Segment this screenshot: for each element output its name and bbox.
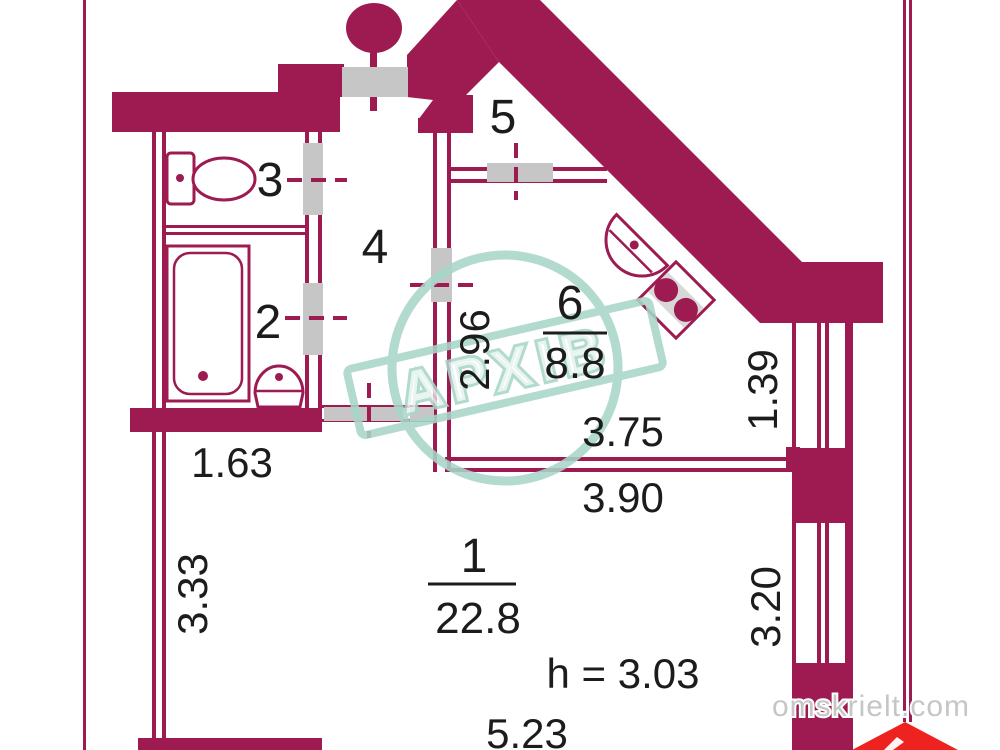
boundary-line-left: [83, 0, 86, 750]
bay-win2-inner-line: [792, 523, 796, 663]
dim-3-20: 3.20: [742, 566, 789, 648]
room4-number: 4: [362, 221, 389, 274]
dim-1-63: 1.63: [191, 439, 273, 486]
left-wall-line-2: [162, 132, 166, 743]
room2-number: 2: [255, 296, 282, 349]
bay-win1-outer-line: [845, 323, 853, 448]
shaft-wall-line-2: [447, 133, 451, 472]
roof-tip-b: [418, 118, 473, 133]
vent-window-opening: [342, 67, 408, 97]
room1-number: 1: [461, 530, 488, 583]
site-logo: [852, 722, 958, 750]
kitchen-bottom-wall-1: [445, 457, 792, 461]
basin-dot: [275, 373, 283, 381]
bay-win1-glass-1: [817, 323, 821, 448]
divider-3-2-line-1: [165, 225, 306, 228]
washbasin-fixture: [255, 366, 303, 407]
boundary-line-right-1: [903, 0, 906, 722]
bathtub-fixture: [167, 246, 249, 401]
bay-win1-inner-line: [792, 323, 796, 448]
floor-plan-svg: АРХІВ 3 2 4 5 6 8.8 1 22.8 1.63 3.33 2.9…: [0, 0, 1000, 750]
bay-pier-1: [792, 448, 853, 523]
bay-win1-glass-2: [825, 323, 829, 448]
site-logo-house: [852, 722, 958, 750]
room5-opening: [487, 163, 553, 182]
bay-win2-glass-2: [825, 523, 829, 663]
room5-number: 5: [490, 91, 517, 144]
wall-top: [112, 92, 340, 132]
room6-number: 6: [557, 277, 584, 330]
bay-win2-glass-1: [817, 523, 821, 663]
room6-area: 8.8: [544, 339, 605, 388]
tub-inner: [174, 253, 242, 394]
tub-drain: [198, 371, 208, 381]
divider-3-2-line-2: [165, 232, 306, 235]
left-wall-line-1: [152, 132, 156, 743]
room1-area: 22.8: [435, 594, 521, 643]
floor-plan-page: АРХІВ 3 2 4 5 6 8.8 1 22.8 1.63 3.33 2.9…: [0, 0, 1000, 750]
bottom-wall: [138, 738, 322, 750]
kitchen-bottom-wall-2: [445, 468, 792, 472]
sink-body: [591, 215, 667, 291]
basin-body: [255, 366, 303, 407]
dim-3-75: 3.75: [582, 408, 664, 455]
bath-bottom-wall: [130, 408, 322, 432]
hall-door-opening-1: [324, 407, 403, 421]
wall-right-block: [760, 262, 883, 323]
toilet-dot: [176, 174, 184, 182]
boundary-line-right-2: [909, 0, 912, 722]
dim-5-23: 5.23: [486, 710, 568, 750]
dim-1-39: 1.39: [739, 349, 786, 431]
kitchen-sink-fixture: [591, 215, 667, 291]
dim-2-96: 2.96: [451, 309, 498, 391]
wall-step: [278, 64, 344, 97]
dim-ceiling-height: h = 3.03: [547, 650, 700, 697]
toilet-bowl: [193, 158, 255, 200]
bay-win2-outer-line: [845, 523, 853, 663]
toilet-fixture: [167, 153, 255, 204]
site-watermark: omskrielt.com: [772, 690, 970, 723]
dim-3-33: 3.33: [169, 553, 216, 635]
dim-3-90: 3.90: [582, 474, 664, 521]
room3-number: 3: [257, 154, 284, 207]
